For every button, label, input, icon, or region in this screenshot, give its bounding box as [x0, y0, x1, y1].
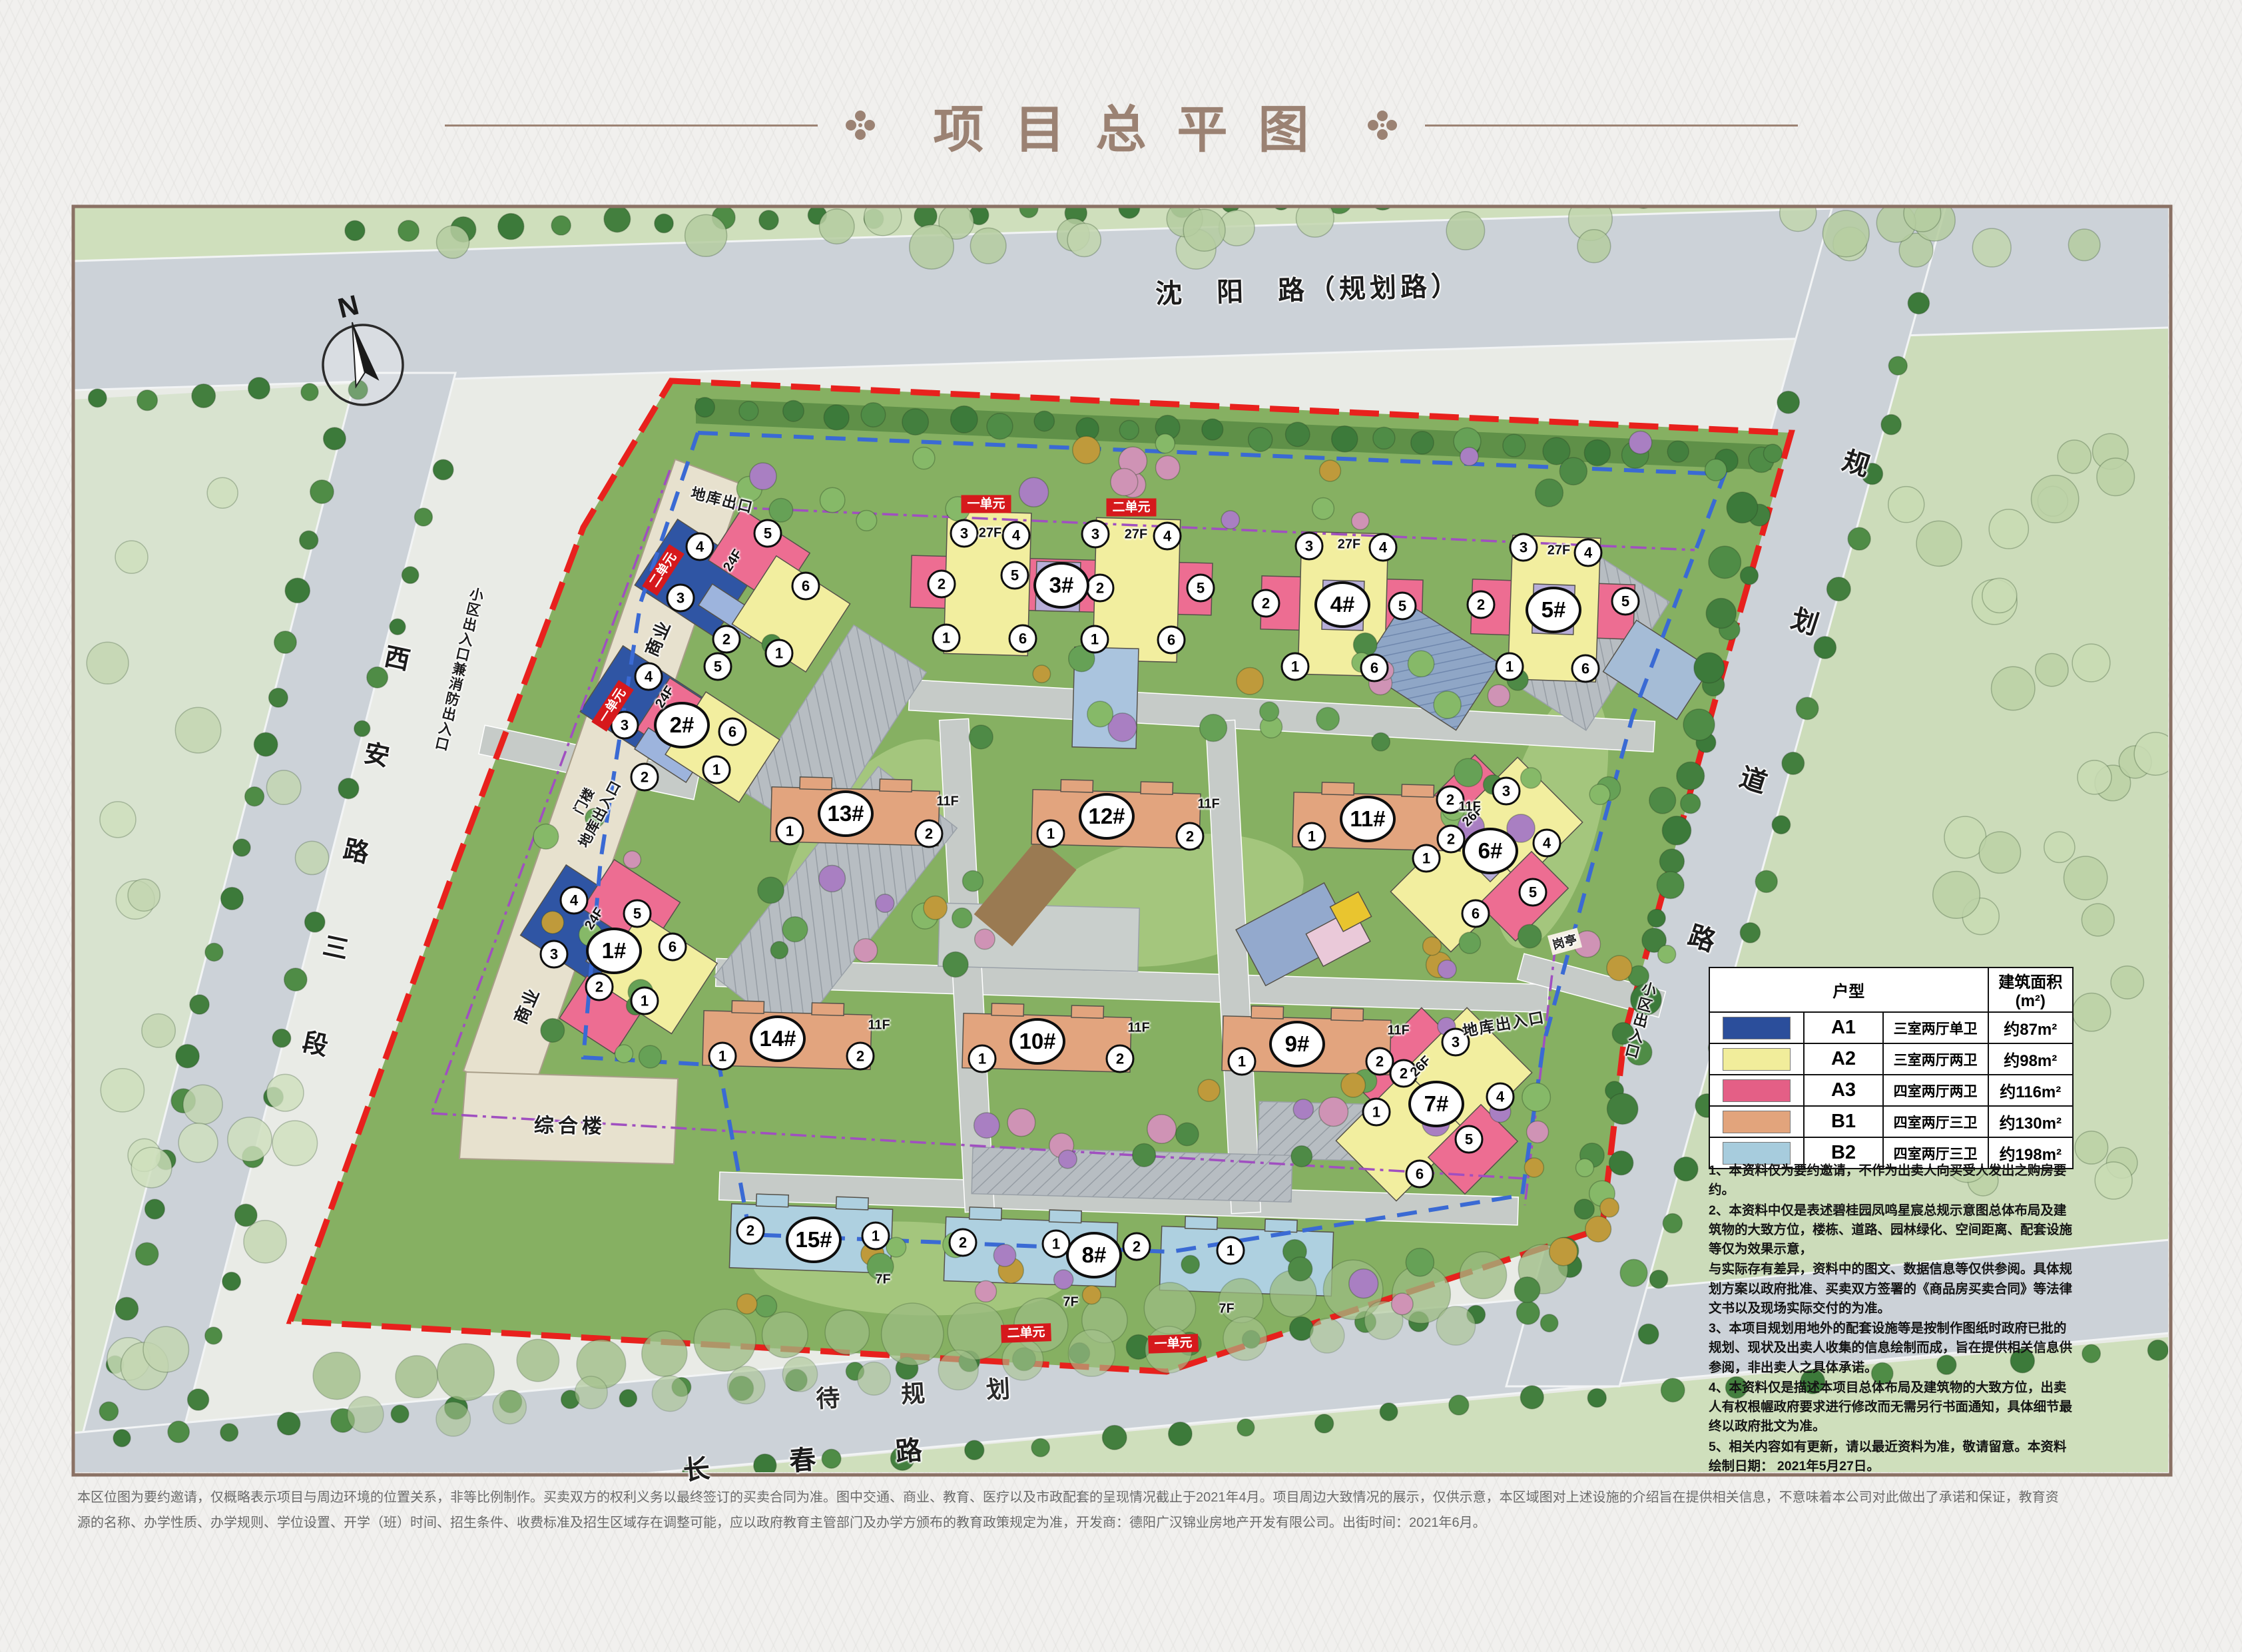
- disclaimer-line-2: 源的名称、办学性质、办学规则、学位设置、开学（班）时间、招生条件、收费标准及招生…: [77, 1510, 2165, 1535]
- legend-unit-desc: 三室两厅单卫: [1883, 1012, 1988, 1043]
- unit-color-swatch: [1723, 1079, 1791, 1102]
- note-item: 5、相关内容如有更新，请以最近资料为准，敬请留意。本资料绘制日期： 2021年5…: [1709, 1438, 2079, 1477]
- poster-page: 项目总平图: [0, 0, 2242, 1652]
- note-item: 3、本项目规划用地外的配套设施等是按制作图纸时政府已批的规划、现状及出卖人收集的…: [1709, 1319, 2079, 1378]
- legend-unit-desc: 四室两厅三卫: [1883, 1106, 1988, 1137]
- legend-swatch-cell: [1709, 1012, 1804, 1043]
- note-item: 1、本资料仅为要约邀请，不作为出卖人向买受人发出之购房要约。: [1709, 1161, 2079, 1201]
- legend-unit-code: B1: [1804, 1106, 1882, 1137]
- legal-notes: 1、本资料仅为要约邀请，不作为出卖人向买受人发出之购房要约。2、本资料中仅是表述…: [1709, 1161, 2079, 1477]
- legend-unit-code: A3: [1804, 1075, 1882, 1106]
- footer-disclaimer: 本区位图为要约邀请，仅概略表示项目与周边环境的位置关系，非等比例制作。买卖双方的…: [77, 1485, 2165, 1535]
- legend-unit-code: A2: [1804, 1043, 1882, 1075]
- note-item: 4、本资料仅是描述本项目总体布局及建筑物的大致方位，出卖人有权根幄政府要求进行修…: [1709, 1378, 2079, 1437]
- legend-unit-area: 约116m²: [1988, 1075, 2074, 1106]
- legend-unit-desc: 三室两厅两卫: [1883, 1043, 1988, 1075]
- note-item: 与实际存有差异，资料中的图文、数据信息等仅供参阅。具体规划方案以政府批准、买卖双…: [1709, 1260, 2079, 1318]
- legend-header-row: 户型 建筑面积(m²): [1709, 967, 2073, 1012]
- legend-row: A2三室两厅两卫约98m²: [1709, 1043, 2073, 1075]
- legend-unit-area: 约130m²: [1988, 1106, 2074, 1137]
- unit-color-swatch: [1723, 1017, 1791, 1039]
- legend-swatch-cell: [1709, 1043, 1804, 1075]
- legend-col-type: 户型: [1709, 967, 1988, 1012]
- legend-swatch-cell: [1709, 1075, 1804, 1106]
- legend-col-area: 建筑面积(m²): [1988, 967, 2074, 1012]
- disclaimer-line-1: 本区位图为要约邀请，仅概略表示项目与周边环境的位置关系，非等比例制作。买卖双方的…: [77, 1485, 2165, 1510]
- unit-color-swatch: [1723, 1111, 1791, 1133]
- unit-type-legend: 户型 建筑面积(m²) A1三室两厅单卫约87m²A2三室两厅两卫约98m²A3…: [1709, 967, 2074, 1169]
- legend-unit-area: 约98m²: [1988, 1043, 2074, 1075]
- legend-row: A1三室两厅单卫约87m²: [1709, 1012, 2073, 1043]
- legend-unit-code: A1: [1804, 1012, 1882, 1043]
- legend-row: B1四室两厅三卫约130m²: [1709, 1106, 2073, 1137]
- legend-unit-desc: 四室两厅两卫: [1883, 1075, 1988, 1106]
- legend-unit-area: 约87m²: [1988, 1012, 2074, 1043]
- note-item: 2、本资料中仅是表述碧桂园凤鸣星宸总规示意图总体布局及建筑物的大致方位，楼栋、道…: [1709, 1201, 2079, 1260]
- legend-row: A3四室两厅两卫约116m²: [1709, 1075, 2073, 1106]
- legend-swatch-cell: [1709, 1106, 1804, 1137]
- unit-color-swatch: [1723, 1048, 1791, 1071]
